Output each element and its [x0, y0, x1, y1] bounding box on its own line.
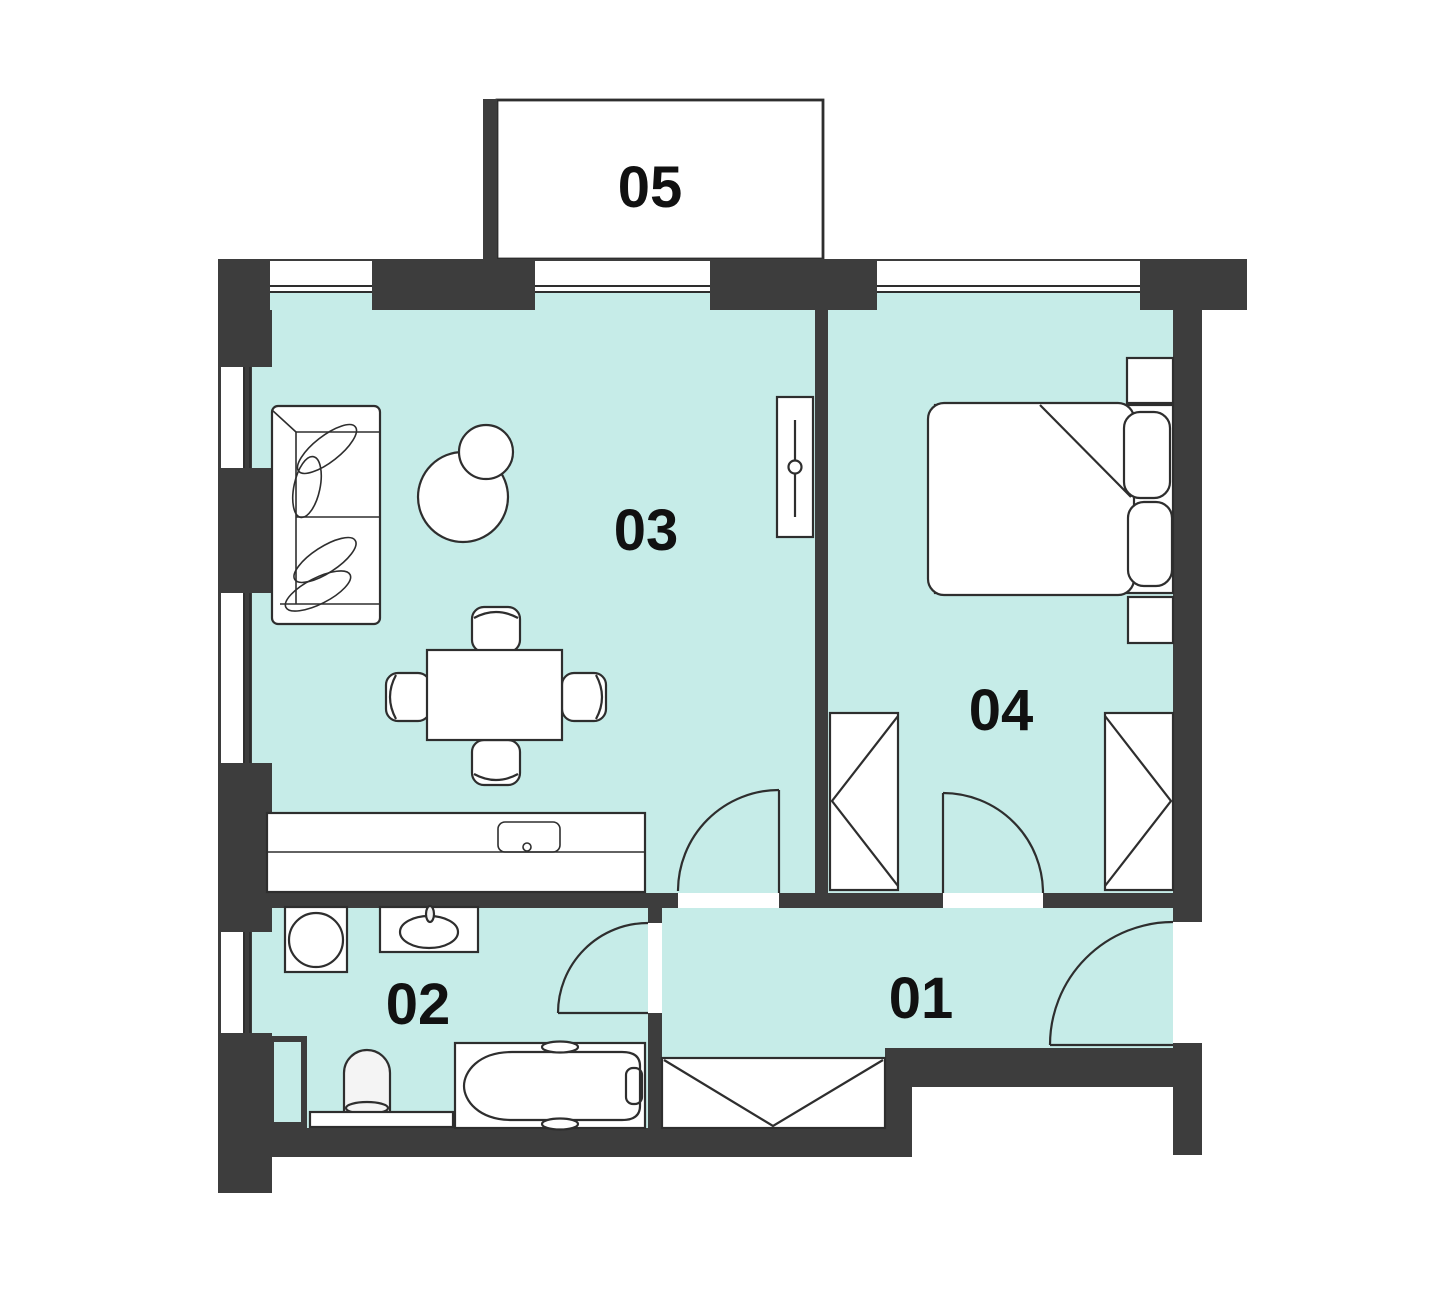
opening-bedroom-door: [943, 893, 1043, 908]
window-top-3: [877, 261, 1140, 293]
bathtub: [455, 1042, 645, 1130]
sofa: [272, 406, 380, 624]
bathroom-sink: [380, 906, 478, 952]
bed-duvet: [928, 403, 1134, 595]
nightstand-top: [1127, 358, 1173, 403]
bed: [928, 403, 1173, 595]
floor-plan: 01 02 03 04 05: [0, 0, 1441, 1316]
wall-corner-southwest: [218, 1035, 272, 1193]
entry-closet: [662, 1058, 885, 1128]
window-left-1: [221, 367, 243, 468]
wardrobe-right: [1105, 713, 1173, 890]
bed-pillow-bottom: [1128, 502, 1172, 586]
wall-bottom-right: [885, 1048, 1202, 1087]
chair-top: [472, 607, 520, 652]
wall-corner-southeast: [1173, 1043, 1202, 1155]
kitchen-counter: [267, 813, 645, 892]
bathtub-handle-bottom: [542, 1119, 578, 1130]
room-label-living-room: 03: [614, 498, 679, 563]
opening-entrance-door: [1173, 922, 1202, 1043]
washing-machine: [285, 907, 347, 972]
wardrobe-left: [830, 713, 898, 890]
wall-bottom-left: [218, 1128, 912, 1157]
room-label-balcony: 05: [618, 155, 683, 220]
sink-faucet: [426, 906, 434, 922]
window-top-1: [270, 261, 372, 293]
room-label-hallway: 01: [889, 966, 954, 1031]
bathtub-handle-top: [542, 1042, 578, 1053]
window-left-3: [221, 932, 243, 1033]
wall-balcony-divider: [483, 99, 497, 259]
opening-bathroom-door: [648, 923, 662, 1013]
chair-bottom: [472, 740, 520, 785]
wall-closet-side: [885, 1058, 912, 1157]
duct-opening: [274, 1042, 301, 1122]
radiator: [777, 397, 813, 537]
nightstand-bottom: [1128, 597, 1173, 643]
window-top-2: [535, 261, 710, 293]
dining-table: [427, 650, 562, 740]
room-label-bedroom: 04: [969, 678, 1034, 743]
wall-divider-living-bedroom: [815, 310, 828, 908]
bed-pillow-top: [1124, 412, 1170, 498]
window-left-2: [221, 593, 243, 763]
room-label-bathroom: 02: [386, 972, 451, 1037]
opening-living-door: [678, 893, 779, 908]
